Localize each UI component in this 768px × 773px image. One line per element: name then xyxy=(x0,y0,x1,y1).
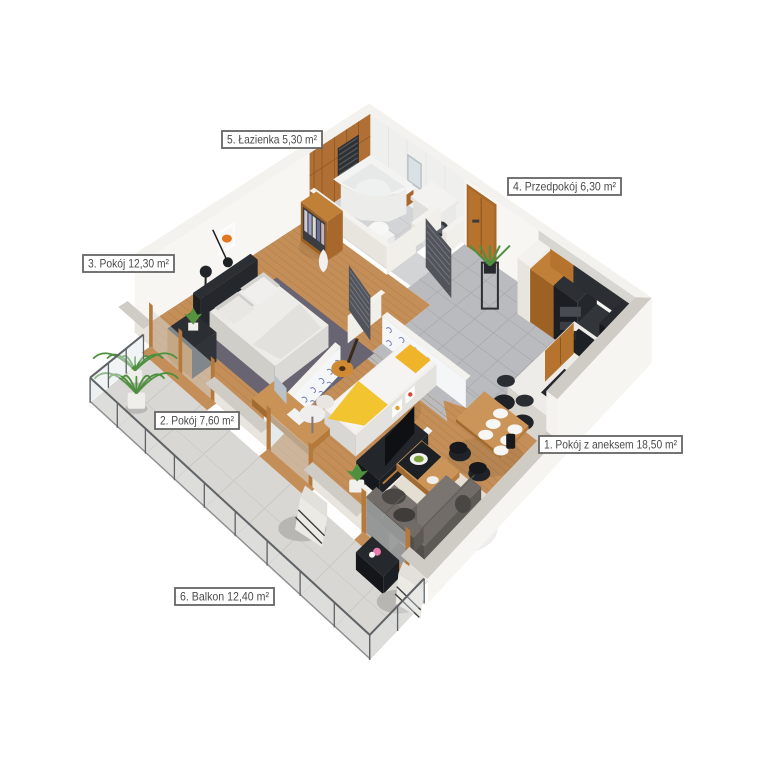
svg-text:3. Pokój 12,30 m²: 3. Pokój 12,30 m² xyxy=(88,257,169,271)
svg-text:4. Przedpokój 6,30 m²: 4. Przedpokój 6,30 m² xyxy=(513,180,616,194)
svg-text:2. Pokój 7,60 m²: 2. Pokój 7,60 m² xyxy=(160,414,234,428)
svg-text:5. Łazienka 5,30 m²: 5. Łazienka 5,30 m² xyxy=(227,133,317,147)
svg-text:6. Balkon 12,40 m²: 6. Balkon 12,40 m² xyxy=(180,590,269,604)
svg-text:1. Pokój z aneksem 18,50 m²: 1. Pokój z aneksem 18,50 m² xyxy=(544,438,677,452)
